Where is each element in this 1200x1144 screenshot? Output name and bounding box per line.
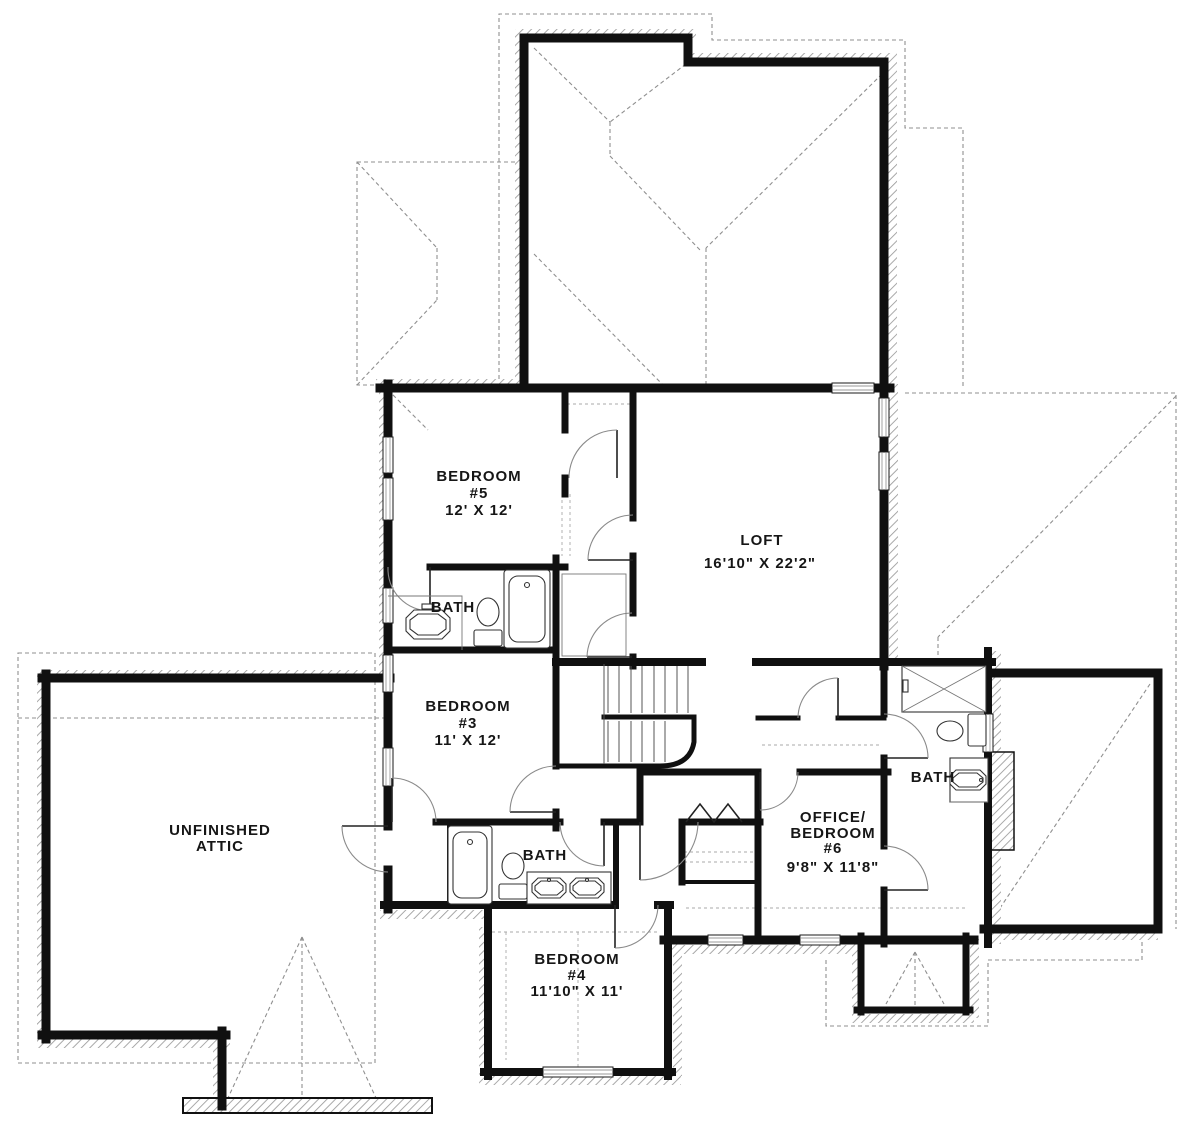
window	[708, 935, 743, 945]
bedroom5-dims: 12' X 12'	[445, 502, 513, 519]
bathtub-icon	[448, 826, 492, 904]
office-label-line1: OFFICE/	[800, 809, 866, 826]
bedroom5-number: #5	[470, 485, 489, 502]
paper-background	[0, 0, 1200, 1144]
office-dims: 9'8" X 11'8"	[787, 859, 880, 876]
window	[879, 452, 889, 490]
bedroom3-label: BEDROOM	[425, 698, 510, 715]
window	[383, 437, 393, 473]
window	[879, 398, 889, 437]
shower-icon	[902, 666, 986, 712]
bath-lower-label: BATH	[523, 847, 568, 864]
loft-dims: 16'10" X 22'2"	[704, 555, 816, 572]
attic-label-line1: UNFINISHED	[169, 822, 271, 839]
double-vanity-sink-icon	[527, 872, 611, 904]
floor-plan-page: BEDROOM #5 12' X 12' LOFT 16'10" X 22'2"…	[0, 0, 1200, 1144]
window	[383, 588, 393, 623]
window	[383, 478, 393, 520]
bedroom5-label: BEDROOM	[436, 468, 521, 485]
bedroom4-label: BEDROOM	[534, 951, 619, 968]
bath-upper-label: BATH	[431, 599, 476, 616]
window	[383, 655, 393, 692]
floor-plan-drawing: BEDROOM #5 12' X 12' LOFT 16'10" X 22'2"…	[0, 0, 1200, 1144]
window	[543, 1067, 613, 1077]
loft-label: LOFT	[740, 532, 783, 549]
vanity-sink-icon	[950, 758, 988, 802]
window	[800, 935, 840, 945]
attic-label-line2: ATTIC	[196, 838, 244, 855]
bath-right-label: BATH	[911, 769, 956, 786]
bedroom4-number: #4	[568, 967, 587, 984]
bedroom3-dims: 11' X 12'	[434, 732, 501, 749]
office-number: #6	[824, 840, 843, 857]
bathtub-icon	[504, 570, 550, 648]
bedroom3-number: #3	[459, 715, 478, 732]
bedroom4-dims: 11'10" X 11'	[531, 983, 624, 1000]
window	[832, 383, 874, 393]
